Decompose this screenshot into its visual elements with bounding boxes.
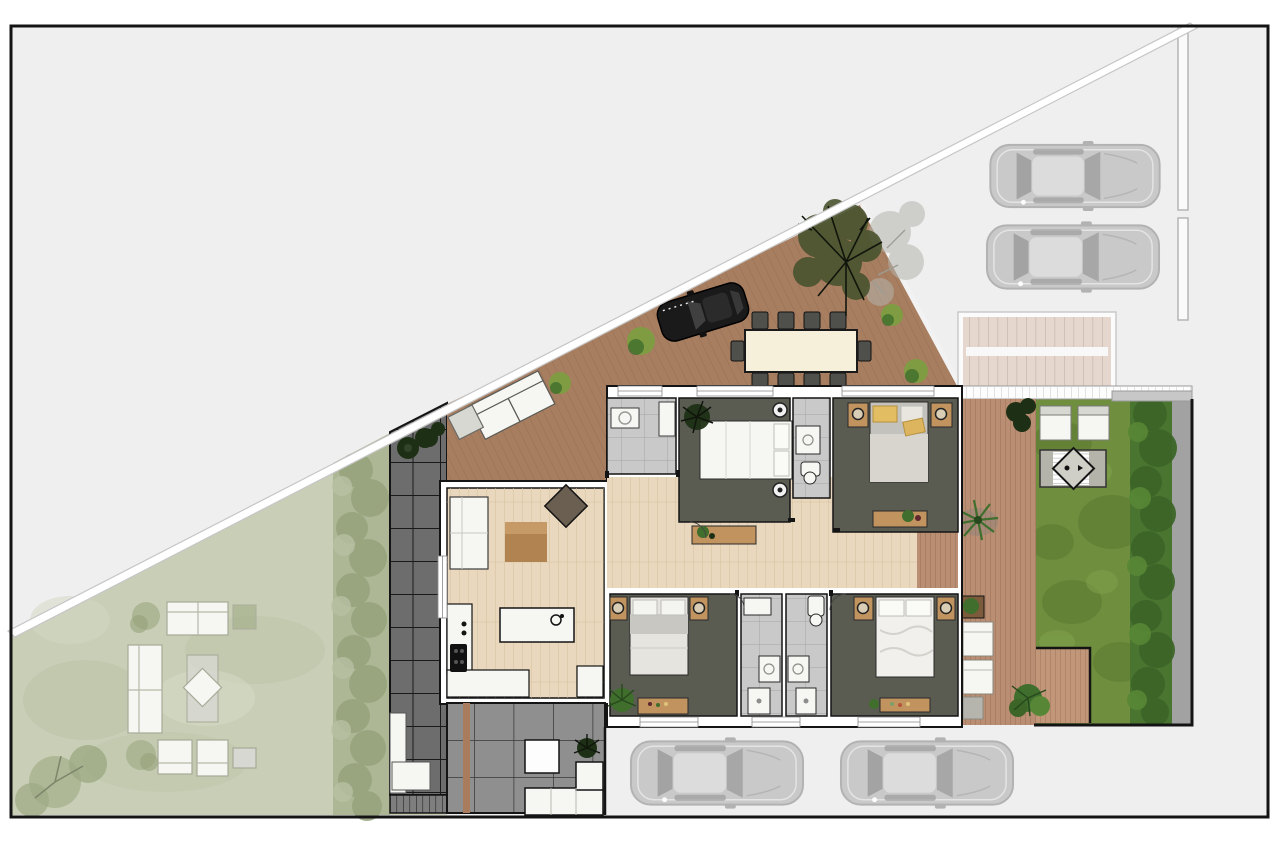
bench-plant [869,699,879,709]
pillow [633,600,657,615]
bedroom-1 [679,398,792,522]
garden-hedge [1127,397,1177,726]
pillow [661,600,685,615]
car-top-view [990,141,1159,211]
sink-vanity [759,656,780,682]
pillow [873,406,897,422]
deck-chair [963,660,993,694]
bathroom-3 [786,594,827,716]
bench-plant [902,510,914,522]
pillow [879,600,904,616]
patio-bench [392,762,430,790]
dining-table [745,330,857,372]
front-lawn-planter [233,605,256,629]
bedroom-4 [831,594,958,716]
lamp [936,409,947,420]
cabinet [659,402,675,436]
kitchen-unit [577,666,603,697]
lamp [853,409,864,420]
pillow [774,424,789,449]
car-top-view [631,737,803,808]
kitchen-counter [447,670,529,697]
pillow [906,600,931,616]
entry-laundry [607,398,676,474]
lamp [613,603,624,614]
foot-bench [880,698,930,712]
bathtub [744,598,771,615]
lamp [941,603,952,614]
washer [611,408,639,428]
planter-pot [431,422,445,436]
lamp [858,603,869,614]
deck-mat [963,697,983,719]
garden-wall-segment [1112,391,1192,401]
patio-wood-divider [463,703,470,813]
living-kitchen [447,485,604,698]
bathroom-1 [793,398,830,498]
car-top-view [841,737,1013,808]
pillow [774,451,789,476]
front-lawn-armchair [197,740,228,776]
deck-chair [963,622,993,656]
bedroom-2 [833,398,958,532]
diamond-spa [1040,448,1106,489]
front-lawn-side-table [233,748,256,768]
bedroom-3 [608,594,737,716]
lamp [694,603,705,614]
foot-bench [638,698,688,714]
toilet [808,596,824,616]
car-top-view [987,221,1159,292]
rear-garden [956,386,1192,726]
entry-platform [958,312,1116,397]
right-boundary-fence [1178,26,1188,320]
kitchen-island [500,608,574,642]
patio-table [525,740,559,773]
platform-step [966,347,1108,356]
sink-vanity [788,656,809,682]
cooktop [450,644,467,672]
front-lawn-armchair [158,740,192,774]
hedge-screen [331,433,390,821]
sink-vanity [796,426,820,454]
rear-patio [447,703,605,815]
site-plan-canvas [0,0,1280,868]
bathroom-2 [741,594,782,716]
hallway-bench [692,526,756,544]
site-plan-drawing [0,0,1280,868]
